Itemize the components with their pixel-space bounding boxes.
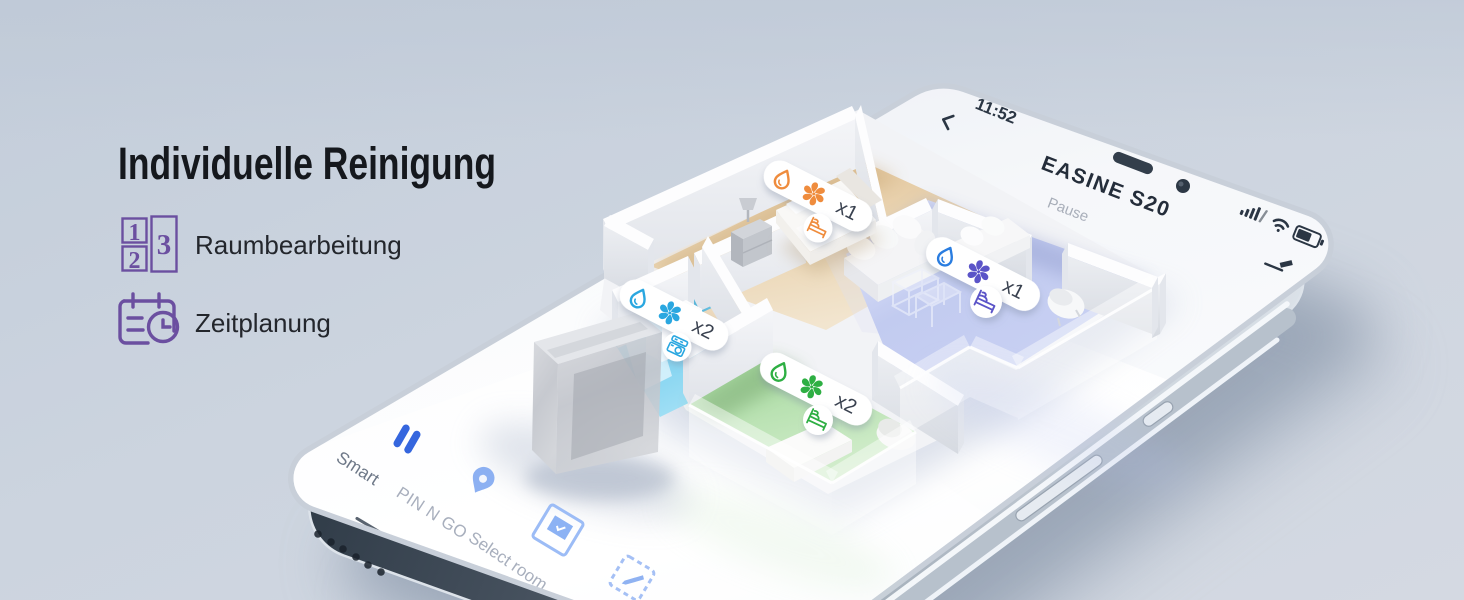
svg-text:3: 3 — [157, 229, 172, 261]
svg-text:1: 1 — [129, 220, 141, 246]
svg-text:Zeitplanung: Zeitplanung — [195, 308, 331, 338]
svg-text:Individuelle Reinigung: Individuelle Reinigung — [118, 138, 496, 189]
svg-text:Raumbearbeitung: Raumbearbeitung — [195, 230, 402, 260]
svg-text:2: 2 — [129, 248, 141, 274]
